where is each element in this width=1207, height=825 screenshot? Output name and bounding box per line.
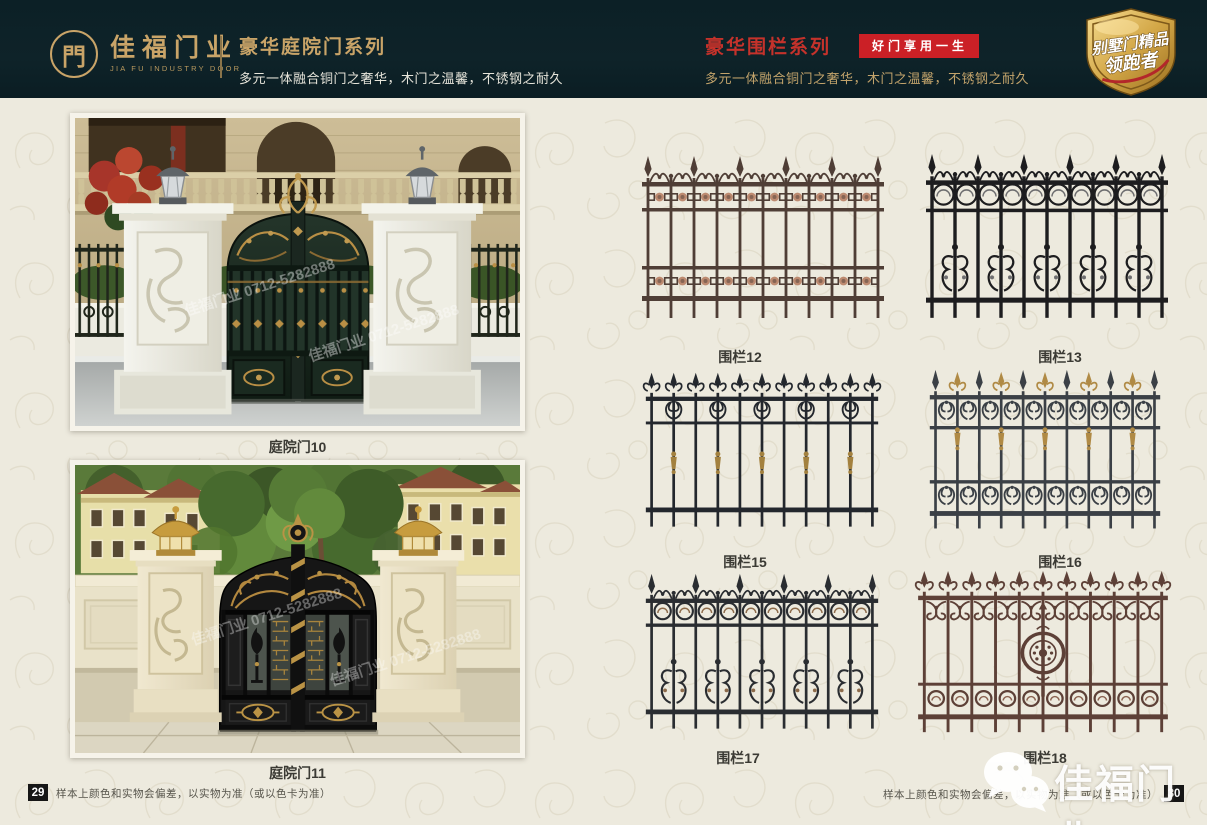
- product-label-fence15: 围栏15: [625, 552, 865, 572]
- logo-glyph: 門: [62, 37, 86, 72]
- product-label-fence12: 围栏12: [615, 347, 865, 367]
- fence-product-image-16: [926, 368, 1164, 542]
- gate-photo-10: 佳福门业 0712-5282888 佳福门业 0712-5282888: [70, 113, 525, 431]
- product-label-gate10: 庭院门10: [70, 437, 525, 457]
- product-label-gate11: 庭院门11: [70, 763, 525, 783]
- premium-shield-badge: 别墅门精品 领跑者: [1077, 5, 1185, 97]
- product-label-fence17: 围栏17: [618, 748, 858, 768]
- product-label-fence13: 围栏13: [935, 347, 1185, 367]
- fence-product-image-15: [642, 368, 882, 540]
- fence-product-image-12: [638, 152, 888, 332]
- right-series-subtitle: 多元一体融合铜门之奢华，木门之温馨，不锈钢之耐久: [705, 68, 1029, 87]
- door-logo-icon: 門: [50, 30, 98, 78]
- slogan-badge: 好门享用一生: [859, 34, 979, 58]
- footer-note-left: 样本上颜色和实物会偏差，以实物为准（或以色卡为准）: [56, 786, 331, 801]
- right-series-title: 豪华围栏系列: [705, 32, 831, 59]
- catalog-spread: 門 佳福门业 JIA FU INDUSTRY DOOR 豪华庭院门系列 多元一体…: [0, 0, 1207, 825]
- fence-product-image-13: [922, 150, 1172, 332]
- page-number-left: 29: [28, 784, 48, 801]
- product-label-fence16: 围栏16: [940, 552, 1180, 572]
- header-divider: [220, 36, 222, 78]
- side-fence-right: [471, 244, 520, 337]
- gate-photo-11: 佳福门业 0712-5282888 佳福门业 0712-5282888: [70, 460, 525, 758]
- fence-product-image-17: [642, 570, 882, 742]
- left-series-header: 豪华庭院门系列 多元一体融合铜门之奢华，木门之温馨，不锈钢之耐久: [239, 32, 563, 87]
- side-fence-left: [75, 244, 124, 337]
- right-series-header: 豪华围栏系列 好门享用一生 多元一体融合铜门之奢华，木门之温馨，不锈钢之耐久: [705, 32, 1029, 87]
- left-series-title: 豪华庭院门系列: [239, 32, 563, 59]
- watermark-brand-text: 佳福门业: [1054, 754, 1204, 825]
- header-bar: 門 佳福门业 JIA FU INDUSTRY DOOR 豪华庭院门系列 多元一体…: [0, 0, 1207, 98]
- wechat-watermark: 佳福门业: [978, 740, 1204, 824]
- brand-logo: 門 佳福门业 JIA FU INDUSTRY DOOR: [50, 30, 241, 78]
- fence-product-image-18: [914, 568, 1172, 746]
- left-series-subtitle: 多元一体融合铜门之奢华，木门之温馨，不锈钢之耐久: [239, 68, 563, 87]
- wechat-icon: [978, 748, 1058, 816]
